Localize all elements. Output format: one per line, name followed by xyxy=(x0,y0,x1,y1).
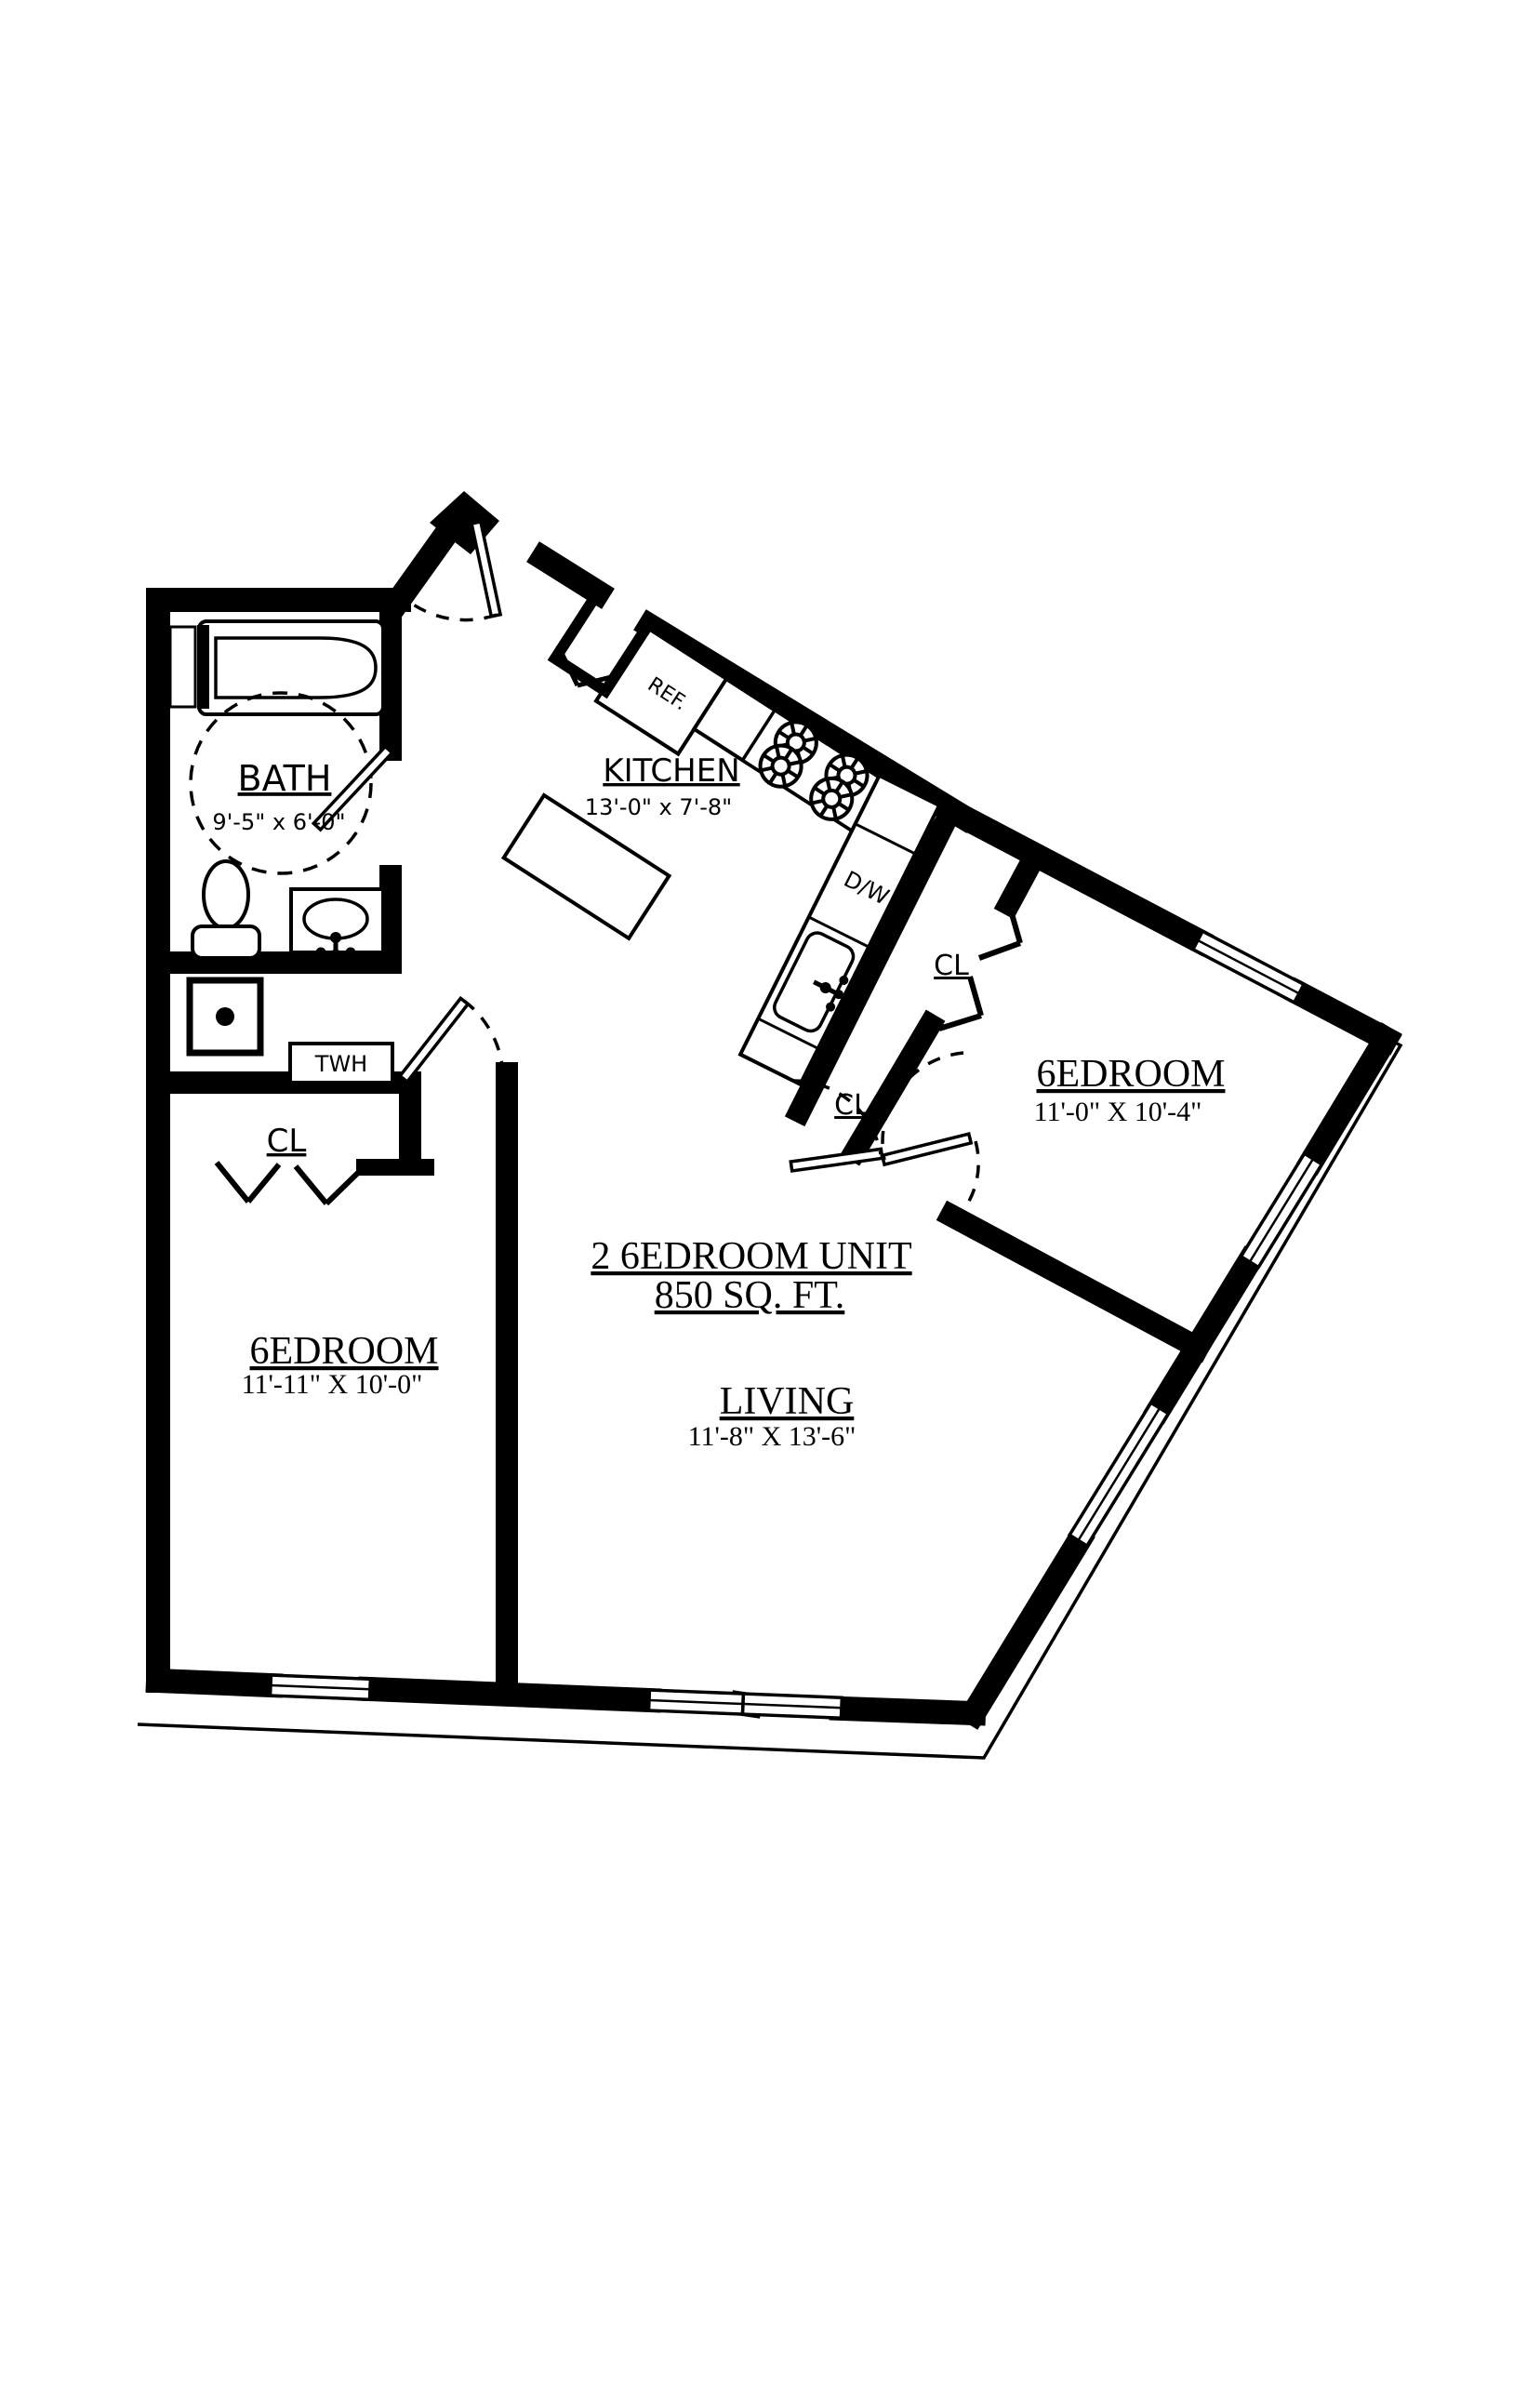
kitchen-label: KITCHEN xyxy=(603,752,739,790)
window-living-2 xyxy=(743,1694,843,1718)
bedroom-right-dims: 11'-0" X 10'-4" xyxy=(1034,1097,1202,1127)
closet-left-bifold xyxy=(217,1163,363,1204)
bath-dims: 9'-5" x 6'-0" xyxy=(212,809,345,835)
closet-mid-door-left xyxy=(790,1149,882,1171)
labels: BATH 9'-5" x 6'-0" KITCHEN 13'-0" x 7'-8… xyxy=(212,673,1225,1452)
entry-door-arc xyxy=(412,604,497,620)
toilet-tank xyxy=(192,926,259,958)
washer-dryer-knob xyxy=(216,1007,234,1026)
kitchen-dims: 13'-0" x 7'-8" xyxy=(585,794,732,820)
faucet-handle xyxy=(316,948,326,958)
toilet-bowl xyxy=(204,861,248,928)
bathtub-inner xyxy=(216,638,376,698)
bedroom-left-label: 6EDROOM xyxy=(249,1330,438,1373)
unit-area: 850 SQ. FT. xyxy=(655,1274,845,1317)
water-heater-label: TWH xyxy=(314,1051,367,1077)
window-bedroom-left xyxy=(271,1675,371,1699)
floor-plan-svg: BATH 9'-5" x 6'-0" KITCHEN 13'-0" x 7'-8… xyxy=(0,0,1540,2381)
living-dims: 11'-8" X 13'-6" xyxy=(688,1421,856,1452)
bath-label: BATH xyxy=(238,758,332,799)
bath-niche-wall xyxy=(197,625,209,709)
floor-plan-page: BATH 9'-5" x 6'-0" KITCHEN 13'-0" x 7'-8… xyxy=(0,0,1540,2381)
closet-right-label: CL xyxy=(934,950,969,982)
bath-niche xyxy=(170,627,195,707)
closet-mid-door-right xyxy=(883,1134,972,1164)
faucet-handle xyxy=(346,948,356,958)
vanity-faucet-knob xyxy=(330,932,341,943)
closet-mid-label: CL xyxy=(834,1089,870,1122)
closet-left-label: CL xyxy=(267,1123,307,1160)
bedroom-right-label: 6EDROOM xyxy=(1036,1053,1225,1096)
window-bedroom-right xyxy=(1193,931,1304,1003)
living-label: LIVING xyxy=(720,1380,855,1423)
bedroom-left-dims: 11'-11" X 10'-0" xyxy=(242,1369,423,1400)
bedroom-left-door-leaf xyxy=(400,998,468,1082)
unit-title: 2 6EDROOM UNIT xyxy=(591,1235,911,1278)
faucet-spout xyxy=(331,950,341,960)
window-living-1 xyxy=(649,1690,744,1714)
